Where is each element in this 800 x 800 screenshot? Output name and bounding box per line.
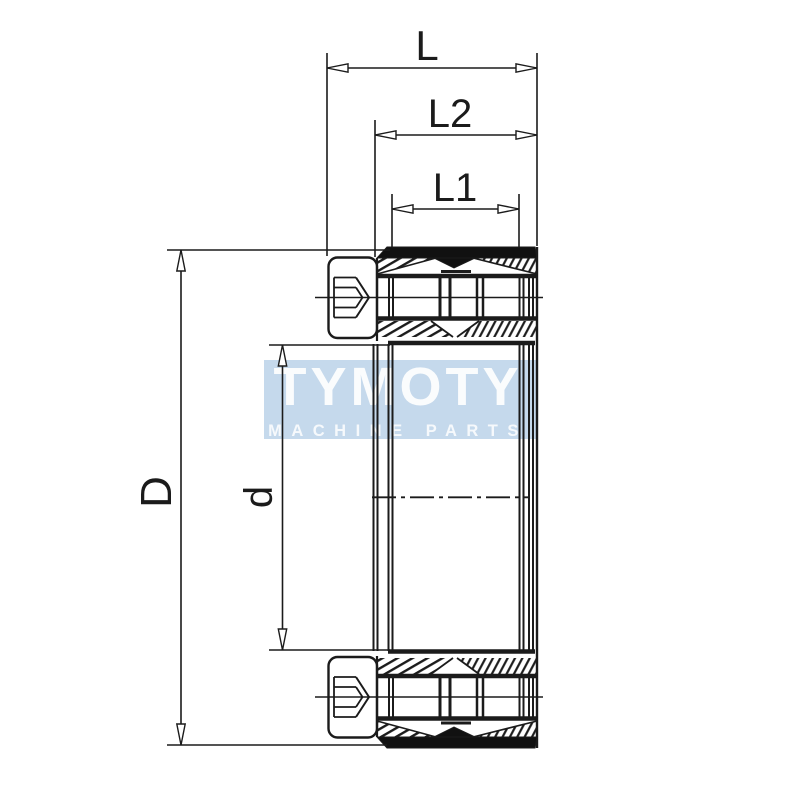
dimension-label-L: L — [415, 22, 438, 69]
watermark: TYMOTY MACHINE PARTS — [264, 357, 536, 440]
dimension-label-D: D — [132, 476, 181, 508]
dimension-label-L2: L2 — [428, 92, 473, 136]
technical-drawing-canvas: TYMOTY MACHINE PARTS — [0, 0, 800, 800]
dimension-label-L1: L1 — [433, 166, 478, 210]
drawing-page: TYMOTY MACHINE PARTS — [0, 0, 800, 800]
watermark-tagline: MACHINE PARTS — [268, 422, 528, 440]
watermark-brand: TYMOTY — [274, 357, 523, 417]
dimension-label-d: d — [237, 486, 281, 508]
